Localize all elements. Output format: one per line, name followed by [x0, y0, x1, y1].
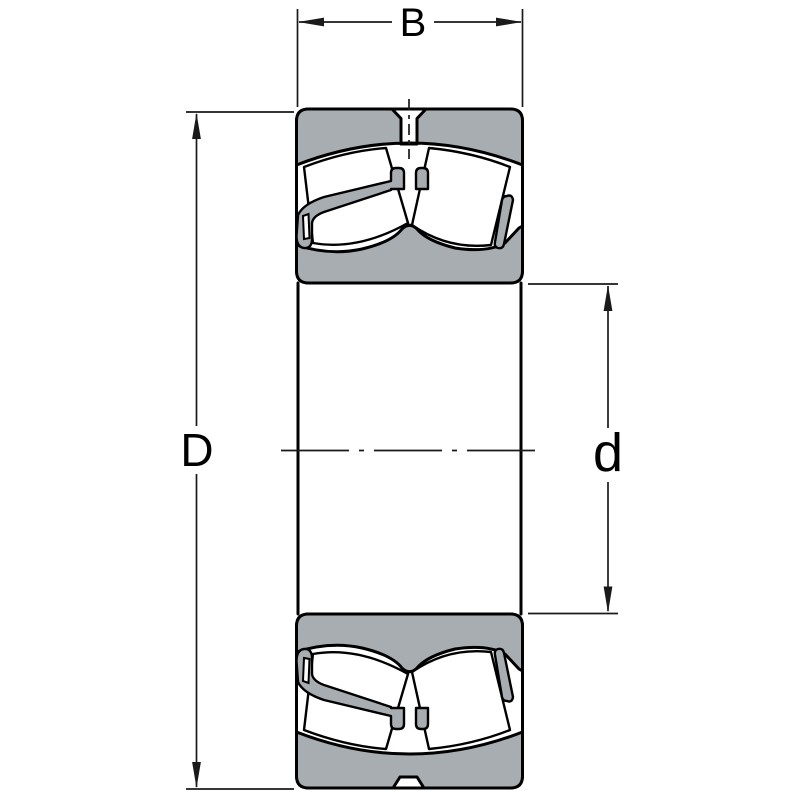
arrow-D-down [192, 762, 201, 788]
arrow-B-right [496, 18, 522, 27]
label-d: d [593, 423, 623, 483]
bearing-diagram-svg: B D d [0, 0, 800, 800]
arrow-B-left [298, 18, 324, 27]
arrow-d-up [604, 285, 613, 311]
arrow-d-down [604, 587, 613, 613]
arrow-D-up [192, 113, 201, 139]
bearing-bottom-section [297, 614, 523, 788]
dimension-D: D [180, 112, 294, 789]
dimension-d: d [528, 284, 623, 614]
bearing-dimension-drawing: B D d [0, 0, 800, 800]
label-D: D [180, 424, 213, 476]
bearing-top-section [297, 99, 523, 283]
dimension-B: B [298, 1, 523, 107]
label-B: B [400, 1, 427, 45]
